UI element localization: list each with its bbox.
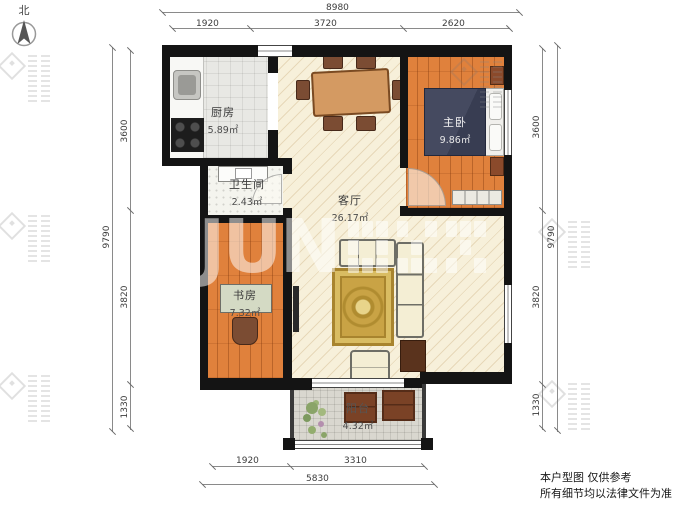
dim-top-seg1: 1920 [196, 19, 219, 29]
compass-icon [8, 18, 40, 50]
dining-chair [296, 80, 310, 100]
window-balcony-front [295, 440, 421, 449]
disclaimer: 本户型图 仅供参考 所有细节均以法律文件为准 [540, 470, 678, 502]
study-desk [220, 284, 272, 313]
wall-kitchen-right-b [268, 130, 278, 166]
dim-line-left-total [112, 47, 113, 432]
stove-icon [171, 118, 204, 152]
disclaimer-line2: 所有细节均以法律文件为准 [540, 486, 678, 502]
wall-study-right [283, 208, 292, 380]
dim-right-seg1: 3600 [532, 109, 542, 145]
kitchen-sink [173, 70, 201, 100]
north-compass: 北 [6, 2, 42, 54]
dim-left-total: 9790 [102, 219, 112, 255]
window-bedroom [504, 90, 512, 155]
wall-bottom-right [420, 372, 512, 384]
wall-right-c [504, 343, 512, 384]
dim-line-left-segments [130, 50, 131, 430]
dim-top-total: 8980 [326, 3, 349, 13]
dining-chair [356, 116, 376, 131]
watermark-stamp [0, 370, 56, 426]
wall-left-kitchen [162, 45, 170, 166]
dim-bottom-total: 5830 [306, 474, 329, 484]
wall-bedroom-bottom [400, 208, 512, 216]
balcony-post-right [421, 438, 433, 450]
dim-left-seg2: 3820 [120, 279, 130, 315]
washbasin-bowl [235, 168, 252, 179]
dining-chair [323, 116, 343, 131]
tv-panel [293, 286, 299, 332]
dim-line-bottom-total [202, 484, 435, 485]
balcony-sliding-door [312, 378, 404, 388]
dim-bottom-seg2: 3310 [344, 456, 367, 466]
dim-right-seg2: 3820 [532, 279, 542, 315]
nightstand [490, 66, 504, 85]
rug [332, 268, 394, 346]
window-living-right [504, 285, 512, 343]
dim-line-right-total [557, 45, 558, 432]
wall-right-b [504, 155, 512, 285]
watermark-stamp [540, 378, 596, 434]
sink-basin [178, 75, 196, 95]
floor-plan-image: 厨房 5.89㎡ 卫生间 2.43㎡ 客厅 26.17㎡ 主卧 9.86㎡ 书房… [0, 0, 680, 510]
wall-bathroom-bottom [200, 215, 292, 223]
wall-kitchen-right-a [268, 57, 278, 73]
wall-bathroom-right-a [283, 166, 292, 174]
dim-right-seg3: 1330 [532, 387, 542, 423]
watermark-stamp [0, 50, 56, 106]
wall-bedroom-left-a [400, 57, 408, 168]
dim-line-right-segments [542, 48, 543, 430]
wall-left-lower [200, 158, 208, 390]
plant [306, 402, 318, 414]
pillow [489, 124, 502, 151]
sofa-horizontal [339, 239, 396, 267]
bathroom-washbasin [218, 166, 268, 182]
dim-right-total: 9790 [547, 219, 557, 255]
wall-study-bottom [200, 378, 312, 390]
wall-right-a [504, 45, 512, 90]
balcony-post-left [283, 438, 295, 450]
wall-top-right [292, 45, 512, 57]
bedroom-dresser [452, 190, 502, 205]
dim-line-bottom-segments [212, 466, 425, 467]
dim-left-seg1: 3600 [120, 113, 130, 149]
wall-top-left [162, 45, 258, 57]
nightstand [490, 157, 504, 176]
dim-left-seg3: 1330 [120, 389, 130, 425]
balcony-mat [344, 392, 377, 423]
north-label: 北 [6, 2, 42, 18]
sofa-vertical [396, 242, 424, 338]
side-table [400, 340, 426, 372]
pillow [489, 93, 502, 120]
watermark-stamp [0, 210, 56, 266]
balcony-mat [382, 390, 415, 421]
disclaimer-line1: 本户型图 仅供参考 [540, 470, 678, 486]
bed-blanket [424, 88, 486, 156]
dim-bottom-seg1: 1920 [236, 456, 259, 466]
dim-top-seg2: 3720 [314, 19, 337, 29]
study-chair [232, 317, 258, 345]
balcony-rail-left [290, 384, 294, 440]
dining-table [311, 68, 391, 117]
balcony-rail-right [422, 384, 426, 440]
dim-top-seg3: 2620 [442, 19, 465, 29]
window-top [258, 45, 292, 57]
